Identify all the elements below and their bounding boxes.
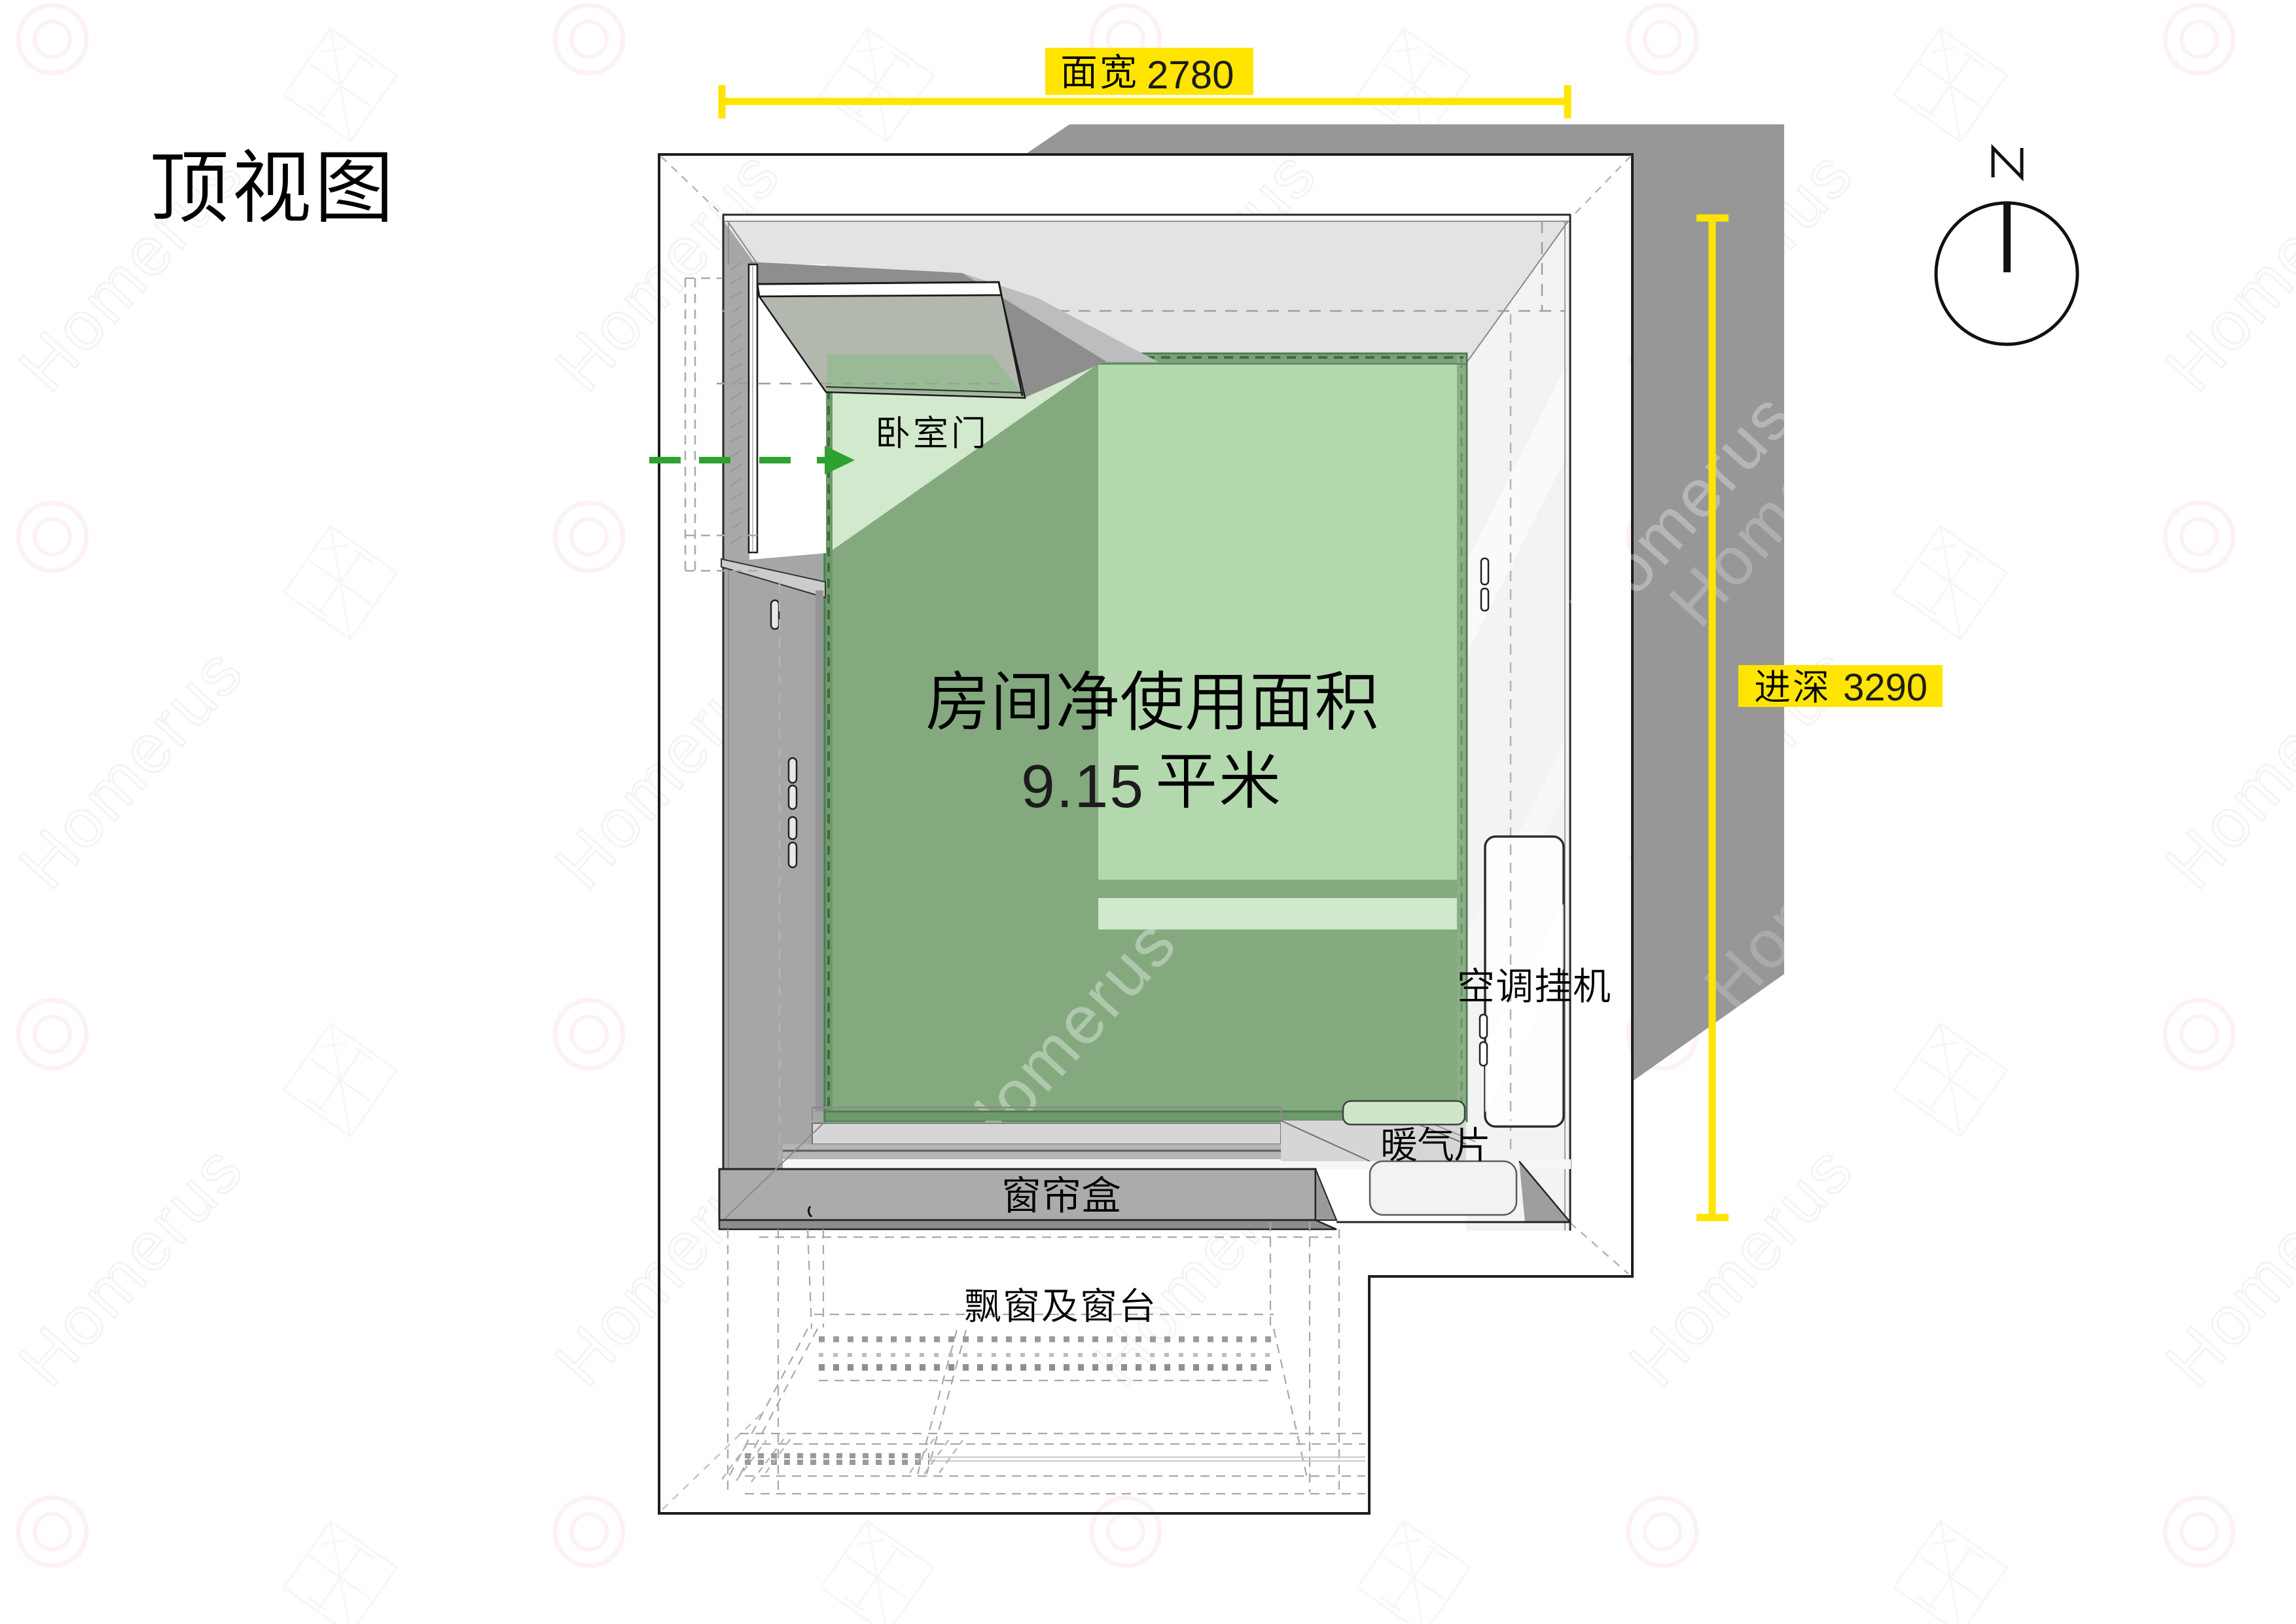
svg-text:3290: 3290 [1843,666,1928,709]
svg-text:2780: 2780 [1147,53,1234,97]
svg-text:9.15: 9.15 [1021,752,1145,820]
